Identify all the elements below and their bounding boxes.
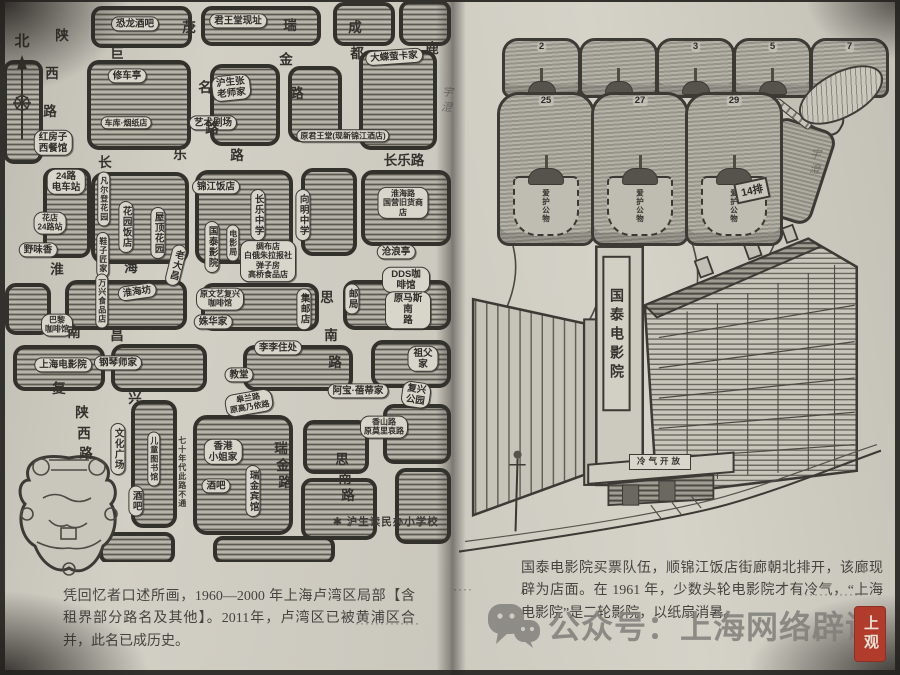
map-label: 万兴食品店	[95, 274, 108, 329]
map-label: 姝华家	[194, 314, 233, 329]
map-label: 酒吧	[128, 486, 143, 517]
street-name: 长	[98, 155, 112, 171]
right-page: 235725爱护公物27爱护公物29爱护公物 14排	[449, 2, 895, 670]
map-label: 钢琴师家	[94, 355, 142, 370]
book-gutter	[436, 0, 466, 675]
street-name: 乐	[173, 147, 187, 163]
street-name: 南	[338, 471, 352, 487]
map-label: 君王堂现址	[209, 13, 267, 28]
street-name: 长乐路	[384, 153, 425, 169]
artist-signature: 宇澄	[805, 147, 823, 178]
seat-number: 2	[537, 42, 546, 52]
seat-fan-icon	[605, 68, 633, 95]
map-label: 酒吧	[201, 478, 230, 493]
street-name: 路	[230, 148, 244, 164]
seat-number: 29	[727, 96, 742, 106]
street-name: 名	[198, 80, 212, 96]
map-label: 长乐中学	[250, 189, 265, 241]
street-name: 巨	[110, 46, 124, 62]
street-name: 思	[320, 290, 334, 306]
seat-fan-icon	[528, 155, 564, 185]
map-label: 国泰影院	[204, 221, 219, 273]
seat-fan-icon	[682, 68, 710, 95]
map-label: 修车亭	[108, 68, 147, 83]
seat-number: 25	[539, 96, 554, 106]
seat-number: 3	[691, 42, 700, 52]
street-name: 陕	[55, 28, 69, 44]
street-name: 金	[276, 458, 290, 474]
street-name: 路	[341, 488, 355, 504]
street-name: 复	[52, 381, 66, 397]
map-label: 凡尔登花园	[97, 172, 110, 227]
map-label: 儿童图书馆	[147, 432, 160, 487]
left-page: 恐龙酒吧君王堂现址修车亭车库·烟纸店沪生张 老师家艺术剧场大蝶萤卡家原君王堂(现…	[5, 2, 449, 670]
cinema-seat-back-row: 2	[502, 38, 581, 98]
map-label: 原君王堂(现新锦江酒店)	[296, 129, 389, 142]
street-name: 淮	[50, 262, 64, 278]
street-name: 瑞	[283, 18, 297, 34]
map-label: 香山路 原莫里哀路	[360, 416, 408, 439]
map-label: 教堂	[224, 367, 253, 382]
street-name: 路	[205, 121, 219, 137]
map-label: 鞋子匠家	[96, 232, 109, 278]
watermark: 公众号：上海网络辟谣	[486, 600, 878, 650]
seat-number: 27	[633, 96, 648, 106]
map-label: 上海电影院	[34, 357, 92, 372]
map-label: 香港 小姐家	[204, 439, 243, 465]
seat-number: 5	[768, 42, 777, 52]
map-label: 淮海坊	[117, 282, 157, 302]
cathay-theatre-drawing	[459, 210, 883, 558]
street-name: 海	[124, 260, 138, 276]
map-label: 锦江饭店	[192, 179, 240, 194]
dotted-rule: ·············	[355, 616, 420, 630]
map-label: 大蝶萤卡家	[365, 47, 423, 66]
map-label: 原马斯南 路	[385, 291, 431, 329]
street-name: 西	[45, 66, 59, 82]
street-name: 路	[79, 446, 93, 462]
cinema-seat-front-row: 25爱护公物	[497, 92, 595, 246]
map-label: 集邮店	[296, 288, 311, 330]
street-name: 路	[328, 355, 342, 371]
map-label: 祖父家	[408, 346, 439, 372]
map-label: 电影局	[226, 225, 239, 262]
street-name: 都	[350, 46, 364, 62]
map-label: 原文艺复兴 咖啡馆	[196, 288, 244, 311]
seat-fan-icon	[622, 155, 658, 185]
cinema-seat-front-row: 29爱护公物	[685, 92, 783, 246]
seat-fan-icon	[759, 68, 787, 95]
map-label: 阿宝·蓓蒂家	[328, 383, 389, 398]
street-name: 瑞	[274, 441, 288, 457]
map-label: 绸布店 白俄朱拉报社 弹子房 高桥食品店	[240, 240, 296, 282]
street-name: 西	[77, 426, 91, 442]
street-name: 路	[278, 475, 292, 491]
map-label: DDS咖啡馆	[382, 267, 430, 293]
compass-arrow-icon	[9, 51, 35, 143]
street-name: 南	[67, 325, 81, 341]
book-photo: 恐龙酒吧君王堂现址修车亭车库·烟纸店沪生张 老师家艺术剧场大蝶萤卡家原君王堂(现…	[0, 0, 900, 675]
map-label: 花店 24路站	[34, 212, 67, 235]
street-name: 成	[348, 20, 362, 36]
map-label: 红房子 西餐馆	[34, 130, 73, 156]
map-label: 沪生张 老师家	[210, 73, 251, 103]
map-label: 皋兰路 原高乃依路	[223, 388, 274, 419]
compass-north: 北	[9, 30, 35, 148]
seat-pocket-text: 爱护公物	[541, 189, 552, 223]
map-label: 车库·烟纸店	[101, 116, 152, 129]
cinema-seat-back-row: 5	[733, 38, 812, 98]
street-name: 兴	[128, 391, 142, 407]
street-name: 陕	[75, 405, 89, 421]
map-label: 文化广场	[110, 423, 125, 475]
street-name: 路	[290, 86, 304, 102]
seat-fan-icon	[528, 68, 556, 95]
map-label: 老大昌	[164, 243, 189, 287]
cinema-seat-back-row	[579, 38, 658, 98]
map-label: 花园饭店	[118, 201, 133, 253]
seat-pocket: 爱护公物	[607, 176, 673, 236]
map-label: 邮局	[344, 284, 359, 315]
map-label: 24路 电车站	[47, 169, 86, 195]
map-label: 野味香	[19, 242, 58, 257]
street-name: 路	[43, 104, 57, 120]
map-label: 复兴 公园	[400, 380, 432, 410]
theatre-name-sign: 国泰电影院	[604, 260, 630, 410]
map-labels-layer: 恐龙酒吧君王堂现址修车亭车库·烟纸店沪生张 老师家艺术剧场大蝶萤卡家原君王堂(现…	[5, 2, 454, 562]
seat-pocket-text: 爱护公物	[635, 189, 646, 223]
wechat-icon	[486, 600, 540, 650]
red-seal: 上观	[854, 606, 886, 662]
street-name: 金	[279, 52, 293, 68]
map-label: 淮海路 国营旧货商店	[378, 187, 429, 219]
map-label: 恐龙酒吧	[111, 16, 159, 31]
seat-pocket: 爱护公物	[513, 176, 579, 236]
map-label: 向明中学	[295, 189, 310, 241]
compass-north-label: 北	[9, 30, 35, 51]
map-label: 李李住处	[254, 340, 302, 355]
map-label: 屋顶花园	[150, 207, 165, 259]
map-footnote: ✱ 沪生读民办小学校	[333, 514, 439, 529]
street-name: 思	[335, 452, 349, 468]
dotted-rule: ·············	[799, 587, 864, 601]
street-name: 南	[324, 328, 338, 344]
street-name: 昌	[110, 328, 124, 344]
map-note: 七十年代此路不通	[176, 432, 187, 512]
cinema-seat-back-row: 3	[656, 38, 735, 98]
entrance-sign: 冷气开放	[629, 454, 691, 470]
watermark-text: 公众号：上海网络辟谣	[548, 602, 878, 648]
map-label: 沧浪亭	[377, 244, 416, 259]
seat-number: 7	[845, 42, 854, 52]
map-label: 瑞金宾馆	[245, 465, 260, 517]
street-name: 茂	[182, 20, 196, 36]
cinema-seat-front-row: 27爱护公物	[591, 92, 689, 246]
